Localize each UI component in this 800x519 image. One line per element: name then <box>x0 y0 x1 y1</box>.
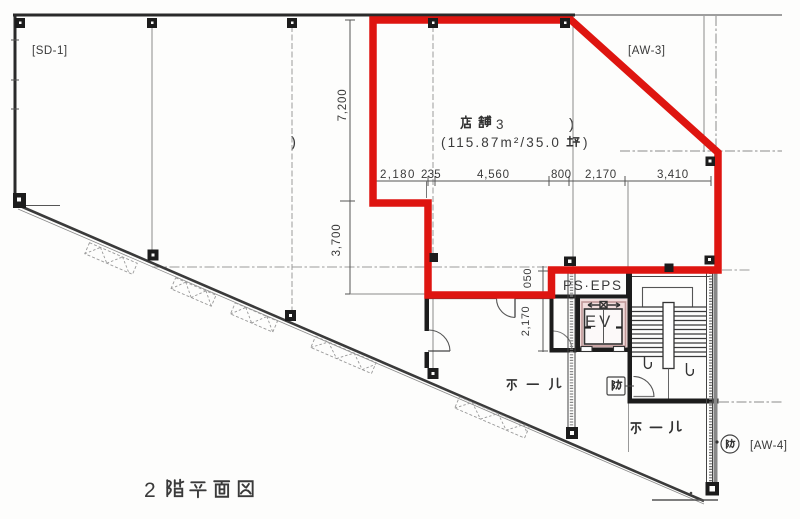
svg-text:235: 235 <box>421 169 441 181</box>
svg-text:2: 2 <box>144 479 156 502</box>
svg-text:[SD-1]: [SD-1] <box>32 45 68 57</box>
svg-text:3: 3 <box>496 117 504 132</box>
svg-text:7,200: 7,200 <box>337 89 349 122</box>
svg-text:3,700: 3,700 <box>331 224 343 257</box>
svg-text:050: 050 <box>522 268 534 288</box>
svg-text:[AW-4]: [AW-4] <box>750 440 788 452</box>
svg-text:2,170: 2,170 <box>585 169 617 181</box>
svg-text:800: 800 <box>551 169 571 181</box>
svg-text:2,180: 2,180 <box>380 169 416 181</box>
svg-text:2,170: 2,170 <box>520 306 532 337</box>
svg-text:[AW-3]: [AW-3] <box>628 45 666 57</box>
svg-text:): ) <box>583 135 588 150</box>
svg-text:3,410: 3,410 <box>657 169 689 181</box>
svg-text:(115.87m²/35.0: (115.87m²/35.0 <box>441 135 561 150</box>
svg-text:4,560: 4,560 <box>477 169 510 181</box>
